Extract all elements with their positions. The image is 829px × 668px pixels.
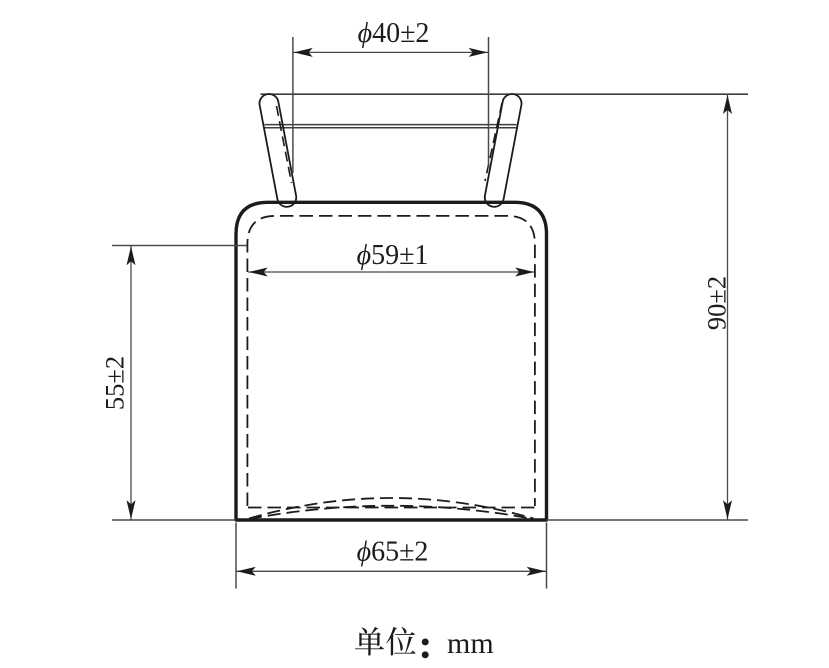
svg-text:90±2: 90±2 <box>702 276 732 330</box>
svg-text:55±2: 55±2 <box>100 356 130 410</box>
svg-text:ϕ40±2: ϕ40±2 <box>358 18 430 49</box>
svg-text:ϕ65±2: ϕ65±2 <box>357 537 429 568</box>
svg-text:ϕ59±1: ϕ59±1 <box>357 240 429 271</box>
svg-text:mm: mm <box>447 627 494 660</box>
